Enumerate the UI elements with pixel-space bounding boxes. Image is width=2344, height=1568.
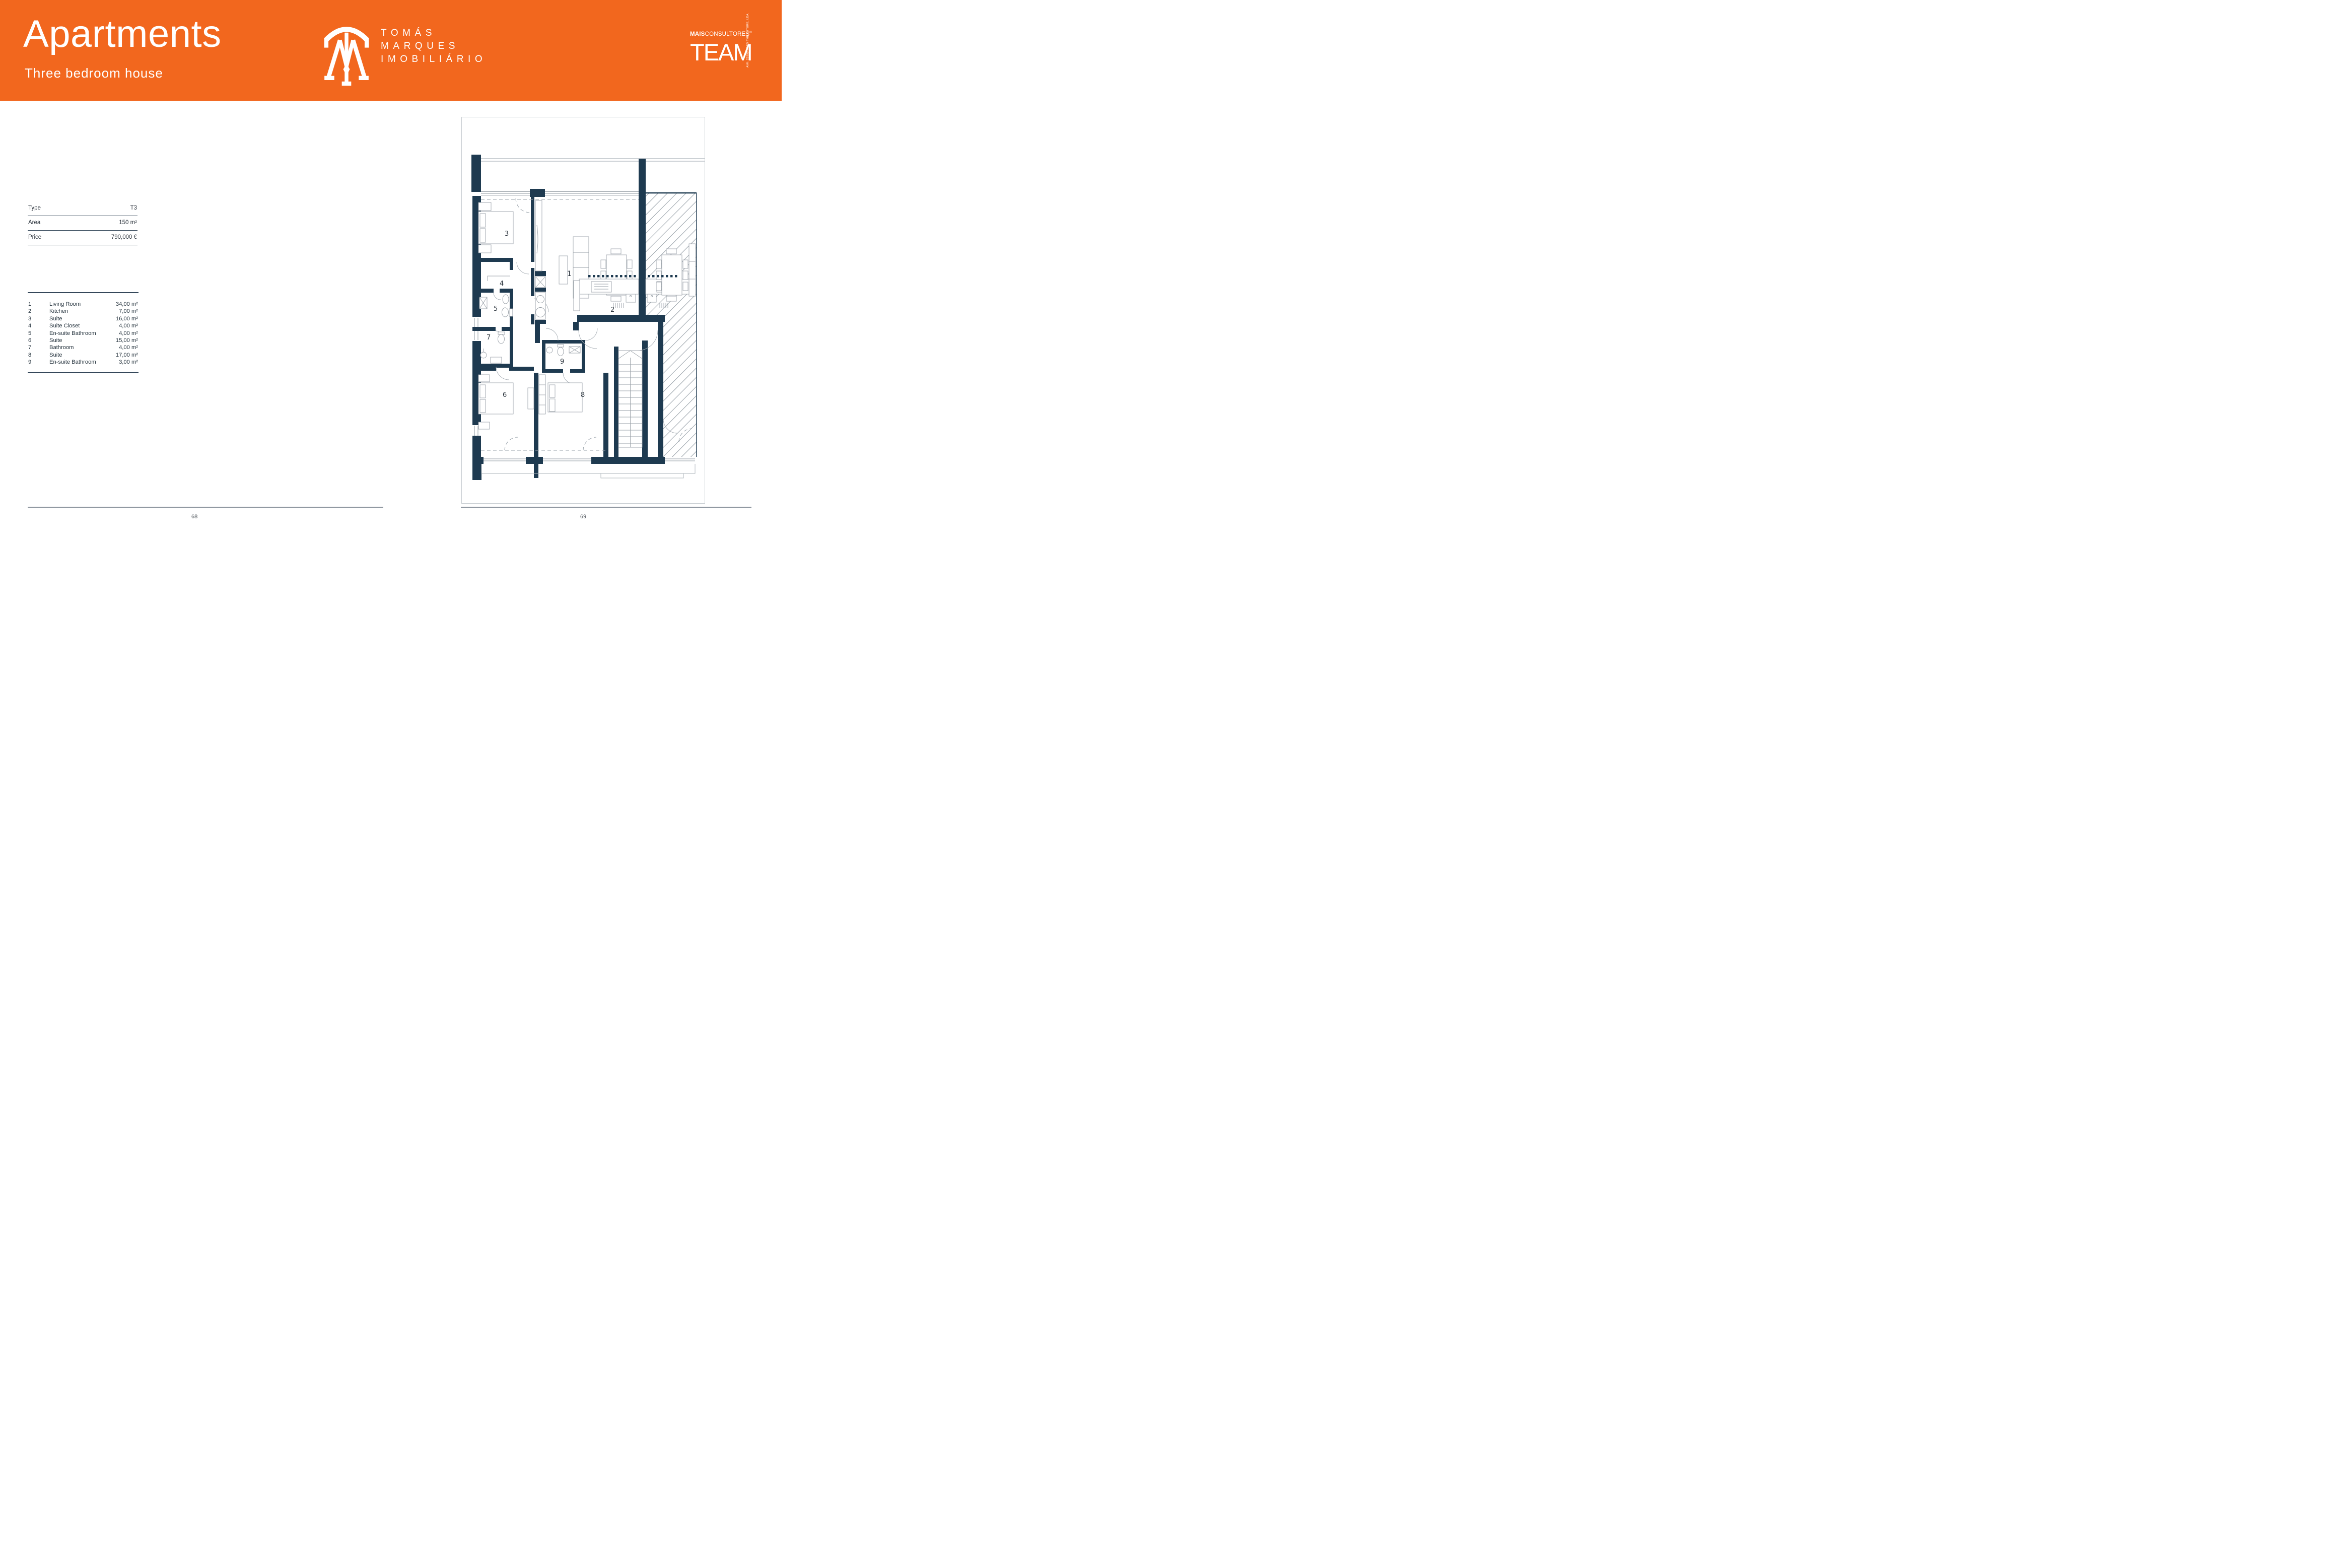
brand-line-2: MARQUES — [381, 40, 487, 53]
patio-outline — [481, 464, 695, 478]
header-band: Apartments Three bedroom house — [0, 0, 782, 101]
room-name: En-suite Bathroom — [49, 359, 119, 366]
spec-label: Type — [28, 205, 41, 211]
plan-label-suite-3: 3 — [505, 230, 509, 238]
footer-rule-left — [28, 507, 383, 508]
room-row: 1Living Room34,00 m² — [28, 301, 138, 308]
room-number: 5 — [28, 330, 49, 337]
registered-mark: ® — [749, 31, 752, 34]
terrace-hatch — [646, 193, 697, 457]
consultores-text: CONSULTORES — [705, 31, 750, 37]
room-area: 4,00 m² — [119, 322, 138, 329]
floor-plan: 1 2 3 4 5 6 7 8 9 — [461, 117, 705, 504]
room-number: 9 — [28, 359, 49, 366]
spec-row-price: Price 790,000 € — [28, 231, 137, 245]
spec-label: Area — [28, 220, 40, 226]
room-number: 7 — [28, 344, 49, 351]
mais-bold: MAIS — [690, 31, 705, 37]
page-subtitle: Three bedroom house — [25, 65, 163, 81]
plan-label-bathroom-7: 7 — [487, 334, 491, 342]
room-row: 6Suite15,00 m² — [28, 337, 138, 344]
page-number-left: 68 — [191, 514, 197, 520]
spec-label: Price — [28, 234, 41, 240]
room-name: Suite — [49, 337, 116, 344]
plan-label-kitchen: 2 — [610, 306, 614, 314]
room-area: 3,00 m² — [119, 359, 138, 366]
brand-logo: TOMÁS MARQUES IMOBILIÁRIO — [321, 17, 533, 87]
room-number: 3 — [28, 315, 49, 322]
room-area: 16,00 m² — [116, 315, 138, 322]
plan-label-suite-6: 6 — [503, 391, 507, 399]
plan-label-living-room: 1 — [567, 270, 572, 278]
team-wordmark: TEAM — [690, 38, 755, 66]
spec-value: T3 — [130, 205, 137, 211]
room-row: 7Bathroom4,00 m² — [28, 344, 138, 351]
room-name: Suite Closet — [49, 322, 119, 329]
page-number-right: 69 — [580, 514, 586, 520]
room-name: Bathroom — [49, 344, 119, 351]
maisconsultores-name: MAISCONSULTORES® — [690, 31, 755, 37]
page-title: Apartments — [23, 15, 222, 53]
maisconsultores-logo: MAISCONSULTORES® TEAM AMI: 23990 SEED TH… — [690, 31, 755, 70]
room-name: En-suite Bathroom — [49, 330, 119, 337]
spec-row-type: Type T3 — [28, 201, 137, 216]
footer-rule-right — [461, 507, 751, 508]
room-name: Suite — [49, 352, 116, 359]
room-row: 3Suite16,00 m² — [28, 315, 138, 322]
room-area: 15,00 m² — [116, 337, 138, 344]
room-name: Suite — [49, 315, 116, 322]
plan-label-suite-8: 8 — [581, 391, 585, 399]
spec-row-area: Area 150 m² — [28, 216, 137, 231]
spec-value: 150 m² — [119, 220, 137, 226]
room-area: 4,00 m² — [119, 344, 138, 351]
room-number: 6 — [28, 337, 49, 344]
tm-monogram-icon — [321, 17, 372, 87]
room-row: 4Suite Closet4,00 m² — [28, 322, 138, 329]
plan-label-ensuite-bath-5: 5 — [494, 305, 498, 313]
room-row: 5En-suite Bathroom4,00 m² — [28, 330, 138, 337]
brand-line-3: IMOBILIÁRIO — [381, 53, 487, 66]
room-name: Living Room — [49, 301, 116, 308]
spec-value: 790,000 € — [111, 234, 137, 240]
brand-line-1: TOMÁS — [381, 27, 487, 40]
brochure-page: Apartments Three bedroom house — [0, 0, 782, 523]
room-number: 8 — [28, 352, 49, 359]
spec-table: Type T3 Area 150 m² Price 790,000 € — [28, 201, 137, 245]
room-area: 34,00 m² — [116, 301, 138, 308]
room-list: 1Living Room34,00 m² 2Kitchen7,00 m² 3Su… — [28, 292, 139, 373]
room-name: Kitchen — [49, 308, 119, 315]
plan-label-ensuite-bath-9: 9 — [560, 358, 564, 366]
team-side-text: AMI: 23990 SEED THE FUTURE, LDA. — [746, 39, 749, 67]
room-number: 1 — [28, 301, 49, 308]
room-area: 17,00 m² — [116, 352, 138, 359]
room-number: 2 — [28, 308, 49, 315]
room-area: 7,00 m² — [119, 308, 138, 315]
room-row: 8Suite17,00 m² — [28, 352, 138, 359]
room-row: 9En-suite Bathroom3,00 m² — [28, 359, 138, 366]
room-number: 4 — [28, 322, 49, 329]
room-area: 4,00 m² — [119, 330, 138, 337]
room-row: 2Kitchen7,00 m² — [28, 308, 138, 315]
plan-label-suite-closet: 4 — [500, 280, 504, 288]
brand-wordmark: TOMÁS MARQUES IMOBILIÁRIO — [381, 27, 487, 66]
